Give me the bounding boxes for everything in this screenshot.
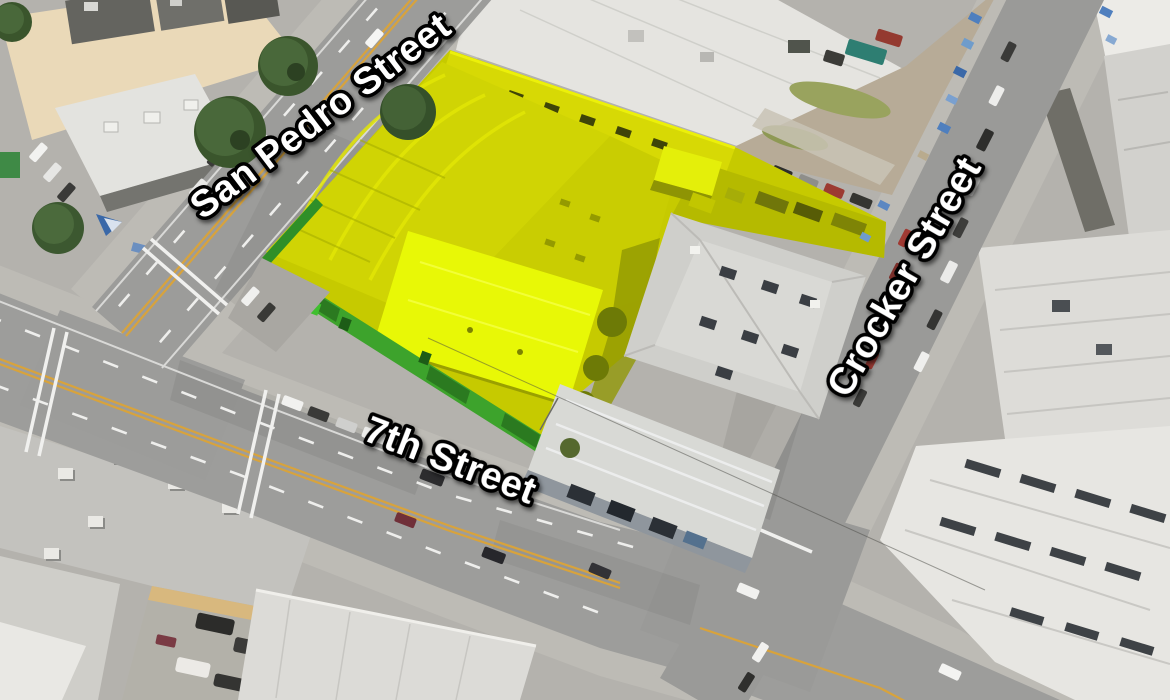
tree	[32, 202, 84, 254]
tree	[583, 355, 609, 381]
tree	[560, 438, 580, 458]
tree	[597, 307, 627, 337]
aerial-map-canvas: San Pedro Street 7th Street Crocker Stre…	[0, 0, 1170, 700]
tree	[380, 84, 436, 140]
green-awning	[0, 152, 20, 178]
tree	[258, 36, 318, 96]
aerial-map: San Pedro Street 7th Street Crocker Stre…	[0, 0, 1170, 700]
industrial-roof-east	[978, 230, 1170, 460]
